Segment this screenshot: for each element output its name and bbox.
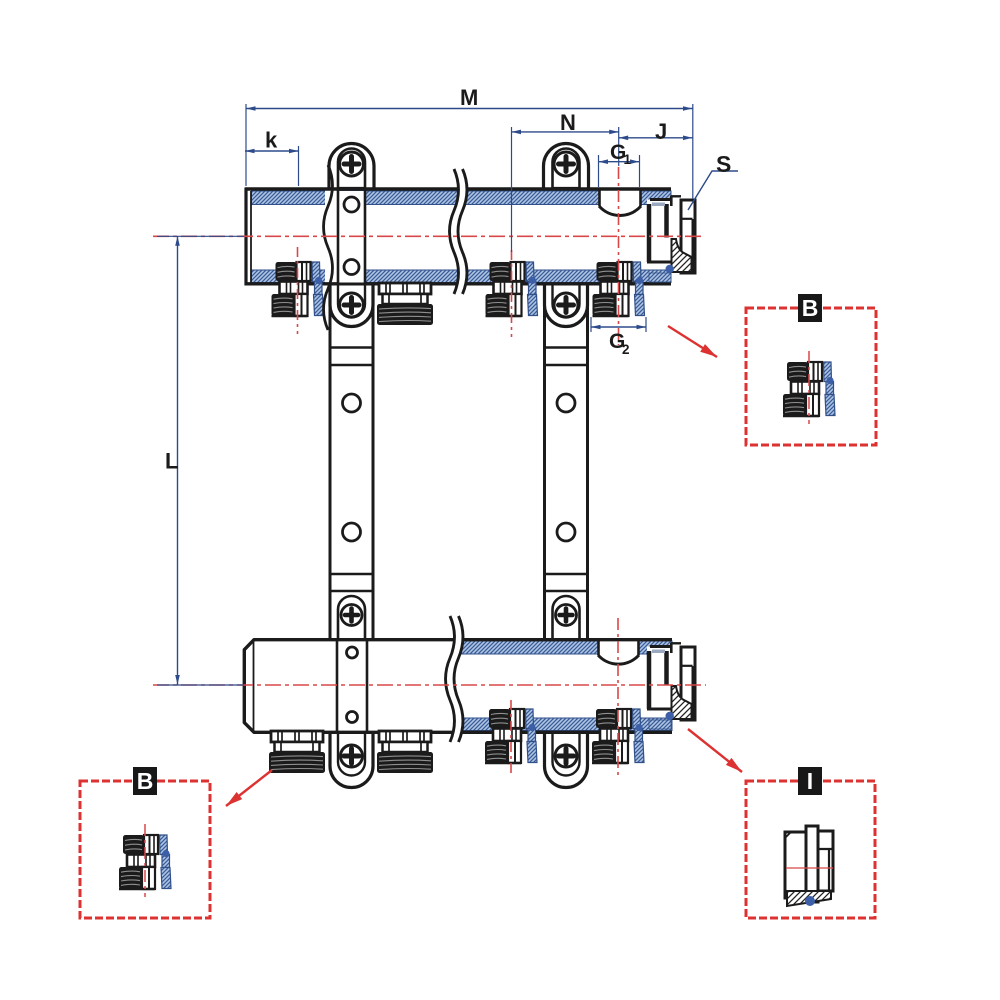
- svg-text:k: k: [265, 128, 278, 153]
- svg-text:N: N: [560, 110, 576, 135]
- svg-text:M: M: [460, 85, 478, 110]
- svg-text:B: B: [137, 768, 154, 794]
- svg-text:B: B: [802, 295, 819, 321]
- svg-text:I: I: [807, 768, 813, 794]
- svg-text:L: L: [165, 449, 178, 474]
- svg-text:2: 2: [622, 342, 630, 357]
- svg-text:J: J: [655, 119, 667, 144]
- svg-text:S: S: [716, 151, 731, 177]
- svg-text:1: 1: [624, 152, 632, 167]
